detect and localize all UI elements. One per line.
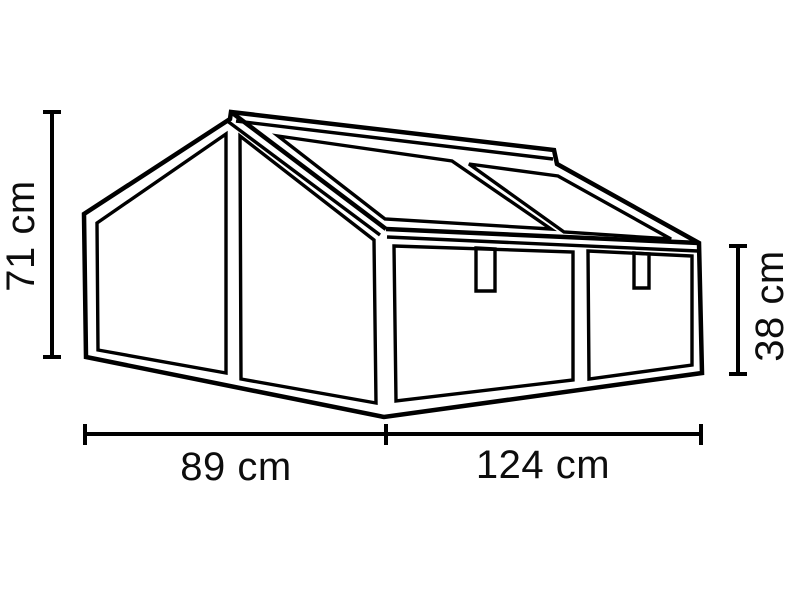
handle-right-panel <box>634 253 649 288</box>
front-eave-edge <box>386 229 699 243</box>
dimension-front-height <box>729 246 747 374</box>
dimension-diagram-canvas: 71 cm 38 cm 89 cm 124 cm <box>0 0 800 600</box>
dimension-overall-height <box>43 112 61 357</box>
front-panel-right <box>588 251 692 379</box>
handle-left-panel <box>476 248 495 291</box>
depth-label: 89 cm <box>180 445 291 489</box>
cold-frame-structure <box>84 112 702 417</box>
overall-height-label: 71 cm <box>0 180 43 291</box>
front-height-label: 38 cm <box>748 250 792 361</box>
gable-panel-left <box>97 134 226 373</box>
front-panel-left <box>394 246 573 401</box>
cold-frame-line-drawing: 71 cm 38 cm 89 cm 124 cm <box>0 0 800 600</box>
roof-sash-left <box>278 136 551 229</box>
left-rafter-inner-line <box>226 120 380 235</box>
dimension-bottom <box>85 424 701 445</box>
gable-panel-right <box>240 136 376 403</box>
roof-sash-right <box>469 164 671 239</box>
width-label: 124 cm <box>476 443 610 487</box>
